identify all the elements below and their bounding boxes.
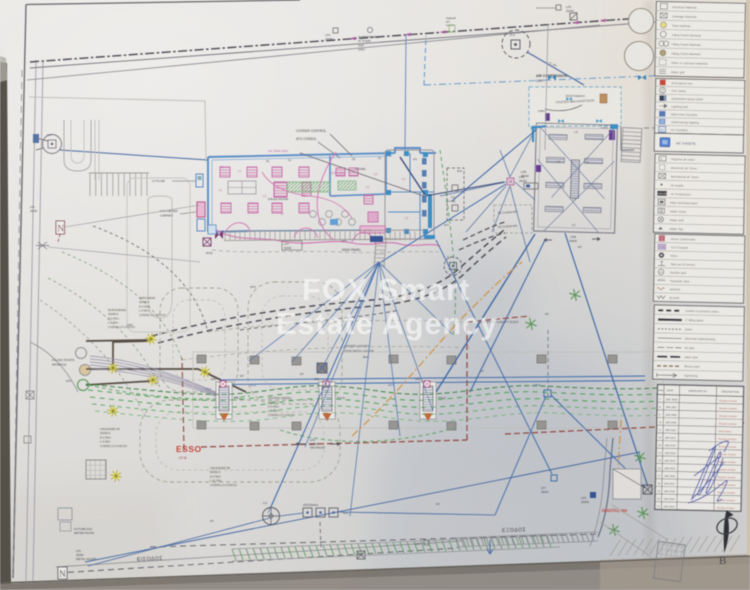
svg-text:Φ-E: Φ-E (457, 169, 462, 173)
svg-text:Siren: Siren (670, 254, 677, 258)
svg-text:L3: L3 (556, 160, 560, 164)
svg-text:Routine revision: Routine revision (719, 407, 738, 410)
svg-text:APPROVED BY: APPROVED BY (688, 389, 707, 393)
svg-text:64°: 64° (240, 374, 244, 378)
svg-text:250W: 250W (566, 9, 574, 13)
svg-text:64°: 64° (155, 381, 159, 385)
svg-text:A.A: A.A (447, 255, 452, 259)
svg-text:Air Compressor: Air Compressor (670, 192, 691, 196)
svg-text:Filling Points Manhole: Filling Points Manhole (671, 52, 701, 57)
svg-text:Routine revision: Routine revision (717, 507, 736, 510)
svg-text:SALES ROOM: SALES ROOM (268, 197, 289, 201)
svg-text:DCB: DCB (206, 251, 212, 255)
svg-text:CYTA DB: CYTA DB (152, 179, 165, 183)
svg-text:PE (2x5kW HP): PE (2x5kW HP) (498, 224, 518, 229)
svg-text:UC1: UC1 (205, 387, 211, 391)
svg-text:JAN 2016: JAN 2016 (664, 475, 676, 478)
svg-text:tpn: tpn (446, 19, 450, 23)
svg-text:BLADE: BLADE (669, 296, 679, 300)
svg-text:Playtime air tower: Playtime air tower (671, 157, 695, 162)
svg-text:ΥΦΙΣΤΑΜΕΝΟ: ΥΦΙΣΤΑΜΕΝΟ (565, 94, 586, 98)
svg-text:Air supply: Air supply (670, 183, 684, 187)
svg-text:TLS: TLS (659, 245, 665, 249)
svg-text:Emergency box: Emergency box (672, 81, 693, 85)
svg-text:Tightening: Tightening (684, 374, 698, 378)
svg-text:Mechanical air Tower: Mechanical air Tower (671, 175, 699, 180)
svg-text:water pipe: water pipe (684, 355, 698, 359)
svg-text:Filling Points Manhole: Filling Points Manhole (671, 42, 701, 47)
svg-text:JAN 2009: JAN 2009 (665, 421, 677, 424)
svg-text:Renovation: Renovation (719, 430, 732, 433)
svg-text:ESSO: ESSO (176, 444, 202, 454)
svg-text:L1: L1 (220, 165, 224, 169)
svg-text:Air Condition: Air Condition (671, 128, 689, 132)
svg-text:Tank out of service: Tank out of service (670, 262, 695, 267)
svg-text:400W: 400W (569, 239, 577, 243)
svg-text:2 Δ: 2 Δ (451, 195, 455, 199)
svg-text:64°: 64° (545, 312, 549, 316)
svg-text:L3: L3 (572, 223, 576, 227)
svg-text:S1: S1 (288, 158, 292, 162)
svg-text:KP5: KP5 (66, 379, 72, 383)
svg-text:MAIN PANEL: MAIN PANEL (342, 248, 361, 252)
svg-text:L2: L2 (405, 216, 409, 220)
svg-text:D/BW: D/BW (601, 126, 608, 130)
svg-text:LP2: LP2 (30, 205, 35, 209)
svg-text:Distribution Board (D/B): Distribution Board (D/B) (671, 97, 703, 102)
svg-text:150W METAL HALIDE: 150W METAL HALIDE (344, 349, 374, 353)
svg-text:XPS: XPS (250, 285, 256, 289)
svg-text:L1: L1 (219, 188, 223, 192)
svg-text:N: N (57, 225, 64, 235)
svg-text:(Y2006) LO CASCIO: (Y2006) LO CASCIO (100, 444, 128, 448)
svg-text:Lighting pole: Lighting pole (671, 105, 688, 109)
svg-text:DEC 2005: DEC 2005 (666, 398, 678, 401)
svg-text:Hydraulic Jack: Hydraulic Jack (670, 279, 690, 283)
svg-text:JAN 2017: JAN 2017 (664, 483, 676, 486)
svg-text:PE (1x5kW HP): PE (1x5kW HP) (498, 210, 518, 215)
svg-text:UC2: UC2 (250, 383, 256, 387)
svg-text:JAN 2019: JAN 2019 (663, 505, 675, 508)
svg-text:N: N (59, 569, 66, 579)
svg-text:CABINET: CABINET (160, 214, 173, 218)
svg-text:Routine revision: Routine revision (719, 400, 738, 403)
svg-text:D/BW: D/BW (538, 109, 545, 113)
svg-text:JAN 2007: JAN 2007 (666, 406, 678, 409)
svg-text:Electrical cable/ducting: Electrical cable/ducting (685, 337, 716, 342)
svg-text:(Y2006) LO CASCIO: (Y2006) LO CASCIO (139, 313, 167, 317)
svg-text:A/C 9KW 240V: A/C 9KW 240V (268, 149, 288, 153)
svg-text:JAN 2012: JAN 2012 (665, 444, 677, 447)
svg-text:L1: L1 (263, 194, 267, 198)
svg-text:Air pipe: Air pipe (684, 346, 695, 350)
svg-text:EAC Meter: EAC Meter (671, 89, 686, 93)
svg-text:Electronic air Tower: Electronic air Tower (671, 166, 697, 171)
svg-text:Other or Unknown Manhole: Other or Unknown Manhole (671, 61, 708, 66)
svg-text:panel: panel (364, 228, 372, 232)
svg-text:L1: L1 (333, 194, 337, 198)
svg-text:Tank manhole: Tank manhole (672, 24, 691, 28)
svg-text:WAVES: WAVES (670, 287, 681, 291)
svg-text:KITCHEN: KITCHEN (331, 171, 345, 175)
svg-text:Water grill: Water grill (671, 70, 685, 74)
svg-text:Monitor well: Monitor well (670, 271, 686, 275)
svg-text:KP5: KP5 (127, 323, 133, 327)
svg-text:Water well: Water well (670, 218, 684, 222)
svg-text:250W: 250W (521, 174, 529, 178)
svg-text:ATG CONSOL: ATG CONSOL (296, 137, 317, 141)
svg-text:Filling Points Manhole: Filling Points Manhole (672, 33, 702, 38)
svg-text:250W: 250W (541, 490, 549, 494)
svg-text:64°: 64° (210, 519, 214, 523)
svg-text:64°: 64° (578, 245, 582, 249)
svg-text:Routine revision: Routine revision (717, 491, 736, 494)
svg-text:LP-B: LP-B (179, 456, 187, 460)
svg-text:FILLING POINTS: FILLING POINTS (52, 358, 75, 362)
svg-text:Drainage Manhole: Drainage Manhole (672, 14, 697, 19)
svg-text:Φ-E: Φ-E (343, 511, 348, 515)
svg-text:64°: 64° (436, 502, 440, 506)
svg-text:ΕΞΟΔΟΣ: ΕΞΟΔΟΣ (502, 527, 527, 534)
svg-text:FOX Smart: FOX Smart (302, 273, 470, 307)
svg-text:Water meter: Water meter (670, 209, 686, 213)
svg-text:ROU: ROU (658, 389, 664, 392)
svg-text:64°: 64° (300, 372, 304, 376)
svg-text:300M: 300M (284, 246, 292, 250)
svg-text:XPS: XPS (341, 239, 347, 243)
svg-text:TLS Console: TLS Console (671, 245, 689, 249)
svg-text:suction or pressure pipes: suction or pressure pipes (685, 309, 719, 314)
svg-text:JAN 2018: JAN 2018 (664, 490, 676, 493)
svg-text:JAN 2015: JAN 2015 (664, 467, 676, 470)
svg-text:DATE: DATE (666, 388, 673, 392)
svg-text:Driver Control Box: Driver Control Box (671, 237, 696, 242)
svg-text:JAN 2014: JAN 2014 (664, 460, 676, 463)
svg-text:L2: L2 (366, 185, 370, 189)
svg-text:regional: regional (446, 16, 456, 20)
svg-text:SECANLED: SECANLED (310, 446, 325, 450)
svg-text:A.A: A.A (510, 33, 515, 37)
svg-text:A.A: A.A (263, 501, 268, 505)
svg-text:A.A: A.A (47, 133, 51, 137)
svg-text:JAN 2019: JAN 2019 (664, 498, 676, 501)
svg-text:L3: L3 (574, 130, 578, 134)
svg-text:250W: 250W (581, 500, 589, 504)
svg-text:AIR COMPRESSOR: AIR COMPRESSOR (536, 74, 568, 78)
svg-text:UC5: UC5 (534, 383, 540, 387)
svg-text:L3: L3 (572, 197, 576, 201)
svg-text:JAN 2008: JAN 2008 (665, 414, 677, 417)
svg-text:JAN 2013: JAN 2013 (665, 452, 677, 455)
svg-text:JAN 2011: JAN 2011 (665, 437, 676, 440)
svg-text:MANHOLE: MANHOLE (52, 363, 66, 367)
svg-text:L2: L2 (374, 172, 378, 176)
svg-text:A/C KASETE: A/C KASETE (676, 141, 697, 145)
svg-text:L1: L1 (238, 169, 242, 173)
svg-text:AC: AC (660, 128, 665, 132)
svg-text:B: B (719, 555, 726, 567)
svg-text:250W: 250W (30, 209, 37, 213)
svg-text:JAN 2010: JAN 2010 (665, 429, 677, 432)
svg-text:(UNDER CANOPY): (UNDER CANOPY) (344, 344, 370, 348)
svg-text:Routine revision: Routine revision (718, 468, 737, 471)
svg-text:Bank Note Acceptor: Bank Note Acceptor (671, 112, 698, 117)
svg-text:(Y2006) LO CASCIO: (Y2006) LO CASCIO (210, 483, 238, 487)
svg-text:STORE: STORE (355, 167, 366, 171)
svg-text:Estate Agency: Estate Agency (276, 307, 498, 341)
svg-text:4" filling pipes: 4" filling pipes (685, 318, 704, 322)
svg-text:L2: L2 (402, 177, 406, 181)
svg-text:Routine revision: Routine revision (718, 476, 737, 479)
svg-text:Water Tap: Water Tap (669, 227, 683, 231)
svg-text:E: E (660, 157, 662, 161)
svg-text:W5p: W5p (314, 377, 320, 381)
svg-text:Undercanopy lighting: Undercanopy lighting (671, 120, 700, 125)
svg-text:Sleeve pipe: Sleeve pipe (684, 364, 700, 368)
svg-text:ΑΠΟΘΗΚΗ: ΑΠΟΘΗΚΗ (303, 503, 318, 507)
svg-text:W5p: W5p (415, 377, 421, 381)
svg-text:w/c: w/c (413, 157, 418, 161)
svg-text:AIR COMPR: AIR COMPR (658, 192, 672, 195)
svg-text:10HP: 10HP (536, 79, 544, 83)
svg-text:Routine revision: Routine revision (719, 422, 738, 425)
svg-text:S1: S1 (266, 159, 270, 163)
svg-text:vents: vents (685, 327, 693, 331)
svg-text:COOKER CONTROL: COOKER CONTROL (296, 129, 327, 133)
svg-text:S1: S1 (378, 156, 382, 160)
svg-text:DESCRIPTION: DESCRIPTION (721, 390, 739, 394)
svg-text:140V: 140V (358, 48, 365, 52)
svg-text:250W: 250W (519, 179, 527, 183)
svg-text:L7: L7 (281, 212, 285, 216)
svg-text:Main electrical panel: Main electrical panel (670, 201, 698, 206)
svg-text:Electrical Manhole: Electrical Manhole (672, 5, 697, 10)
svg-text:250W: 250W (325, 37, 333, 41)
svg-text:S3: S3 (352, 157, 356, 161)
svg-text:W5p: W5p (211, 377, 217, 381)
svg-text:L3: L3 (585, 160, 589, 164)
svg-text:LP2: LP2 (415, 542, 420, 546)
svg-text:Φ-F: Φ-F (444, 223, 449, 227)
svg-text:Routine revision: Routine revision (719, 415, 738, 418)
svg-text:METER ROOM: METER ROOM (74, 531, 95, 535)
